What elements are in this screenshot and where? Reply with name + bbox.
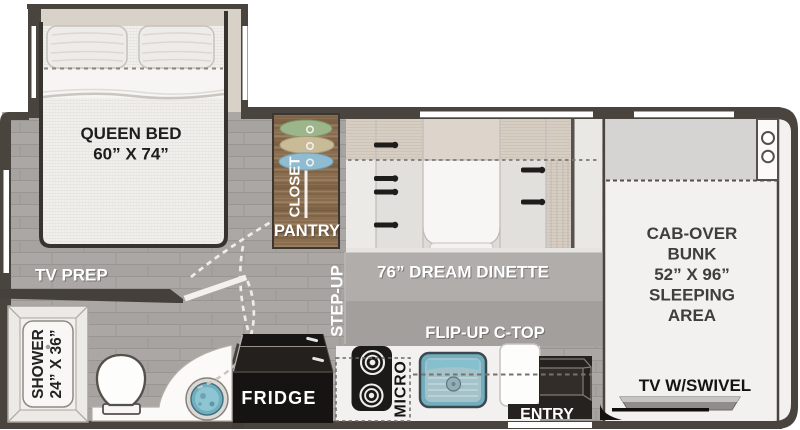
svg-text:QUEEN BED: QUEEN BED <box>80 124 181 143</box>
svg-text:SHOWER: SHOWER <box>30 329 47 399</box>
svg-text:BUNK: BUNK <box>667 245 717 264</box>
svg-text:60” X 74”: 60” X 74” <box>93 145 169 164</box>
svg-text:STEP-UP: STEP-UP <box>329 265 347 337</box>
svg-text:52” X 96”: 52” X 96” <box>654 265 730 284</box>
svg-text:24” X 36”: 24” X 36” <box>48 330 65 399</box>
svg-text:FLIP-UP C-TOP: FLIP-UP C-TOP <box>425 324 544 342</box>
svg-text:FRIDGE: FRIDGE <box>241 388 316 408</box>
svg-text:ENTRY: ENTRY <box>520 406 574 423</box>
svg-text:PANTRY: PANTRY <box>274 222 340 240</box>
svg-text:TV W/SWIVEL: TV W/SWIVEL <box>639 376 751 395</box>
svg-text:76” DREAM DINETTE: 76” DREAM DINETTE <box>377 263 549 282</box>
svg-text:MICRO: MICRO <box>393 360 410 417</box>
svg-text:TV PREP: TV PREP <box>35 266 108 285</box>
svg-text:CAB-OVER: CAB-OVER <box>647 224 738 243</box>
svg-text:SLEEPING: SLEEPING <box>649 286 735 305</box>
svg-text:CLOSET: CLOSET <box>287 157 304 218</box>
svg-text:AREA: AREA <box>668 306 716 325</box>
